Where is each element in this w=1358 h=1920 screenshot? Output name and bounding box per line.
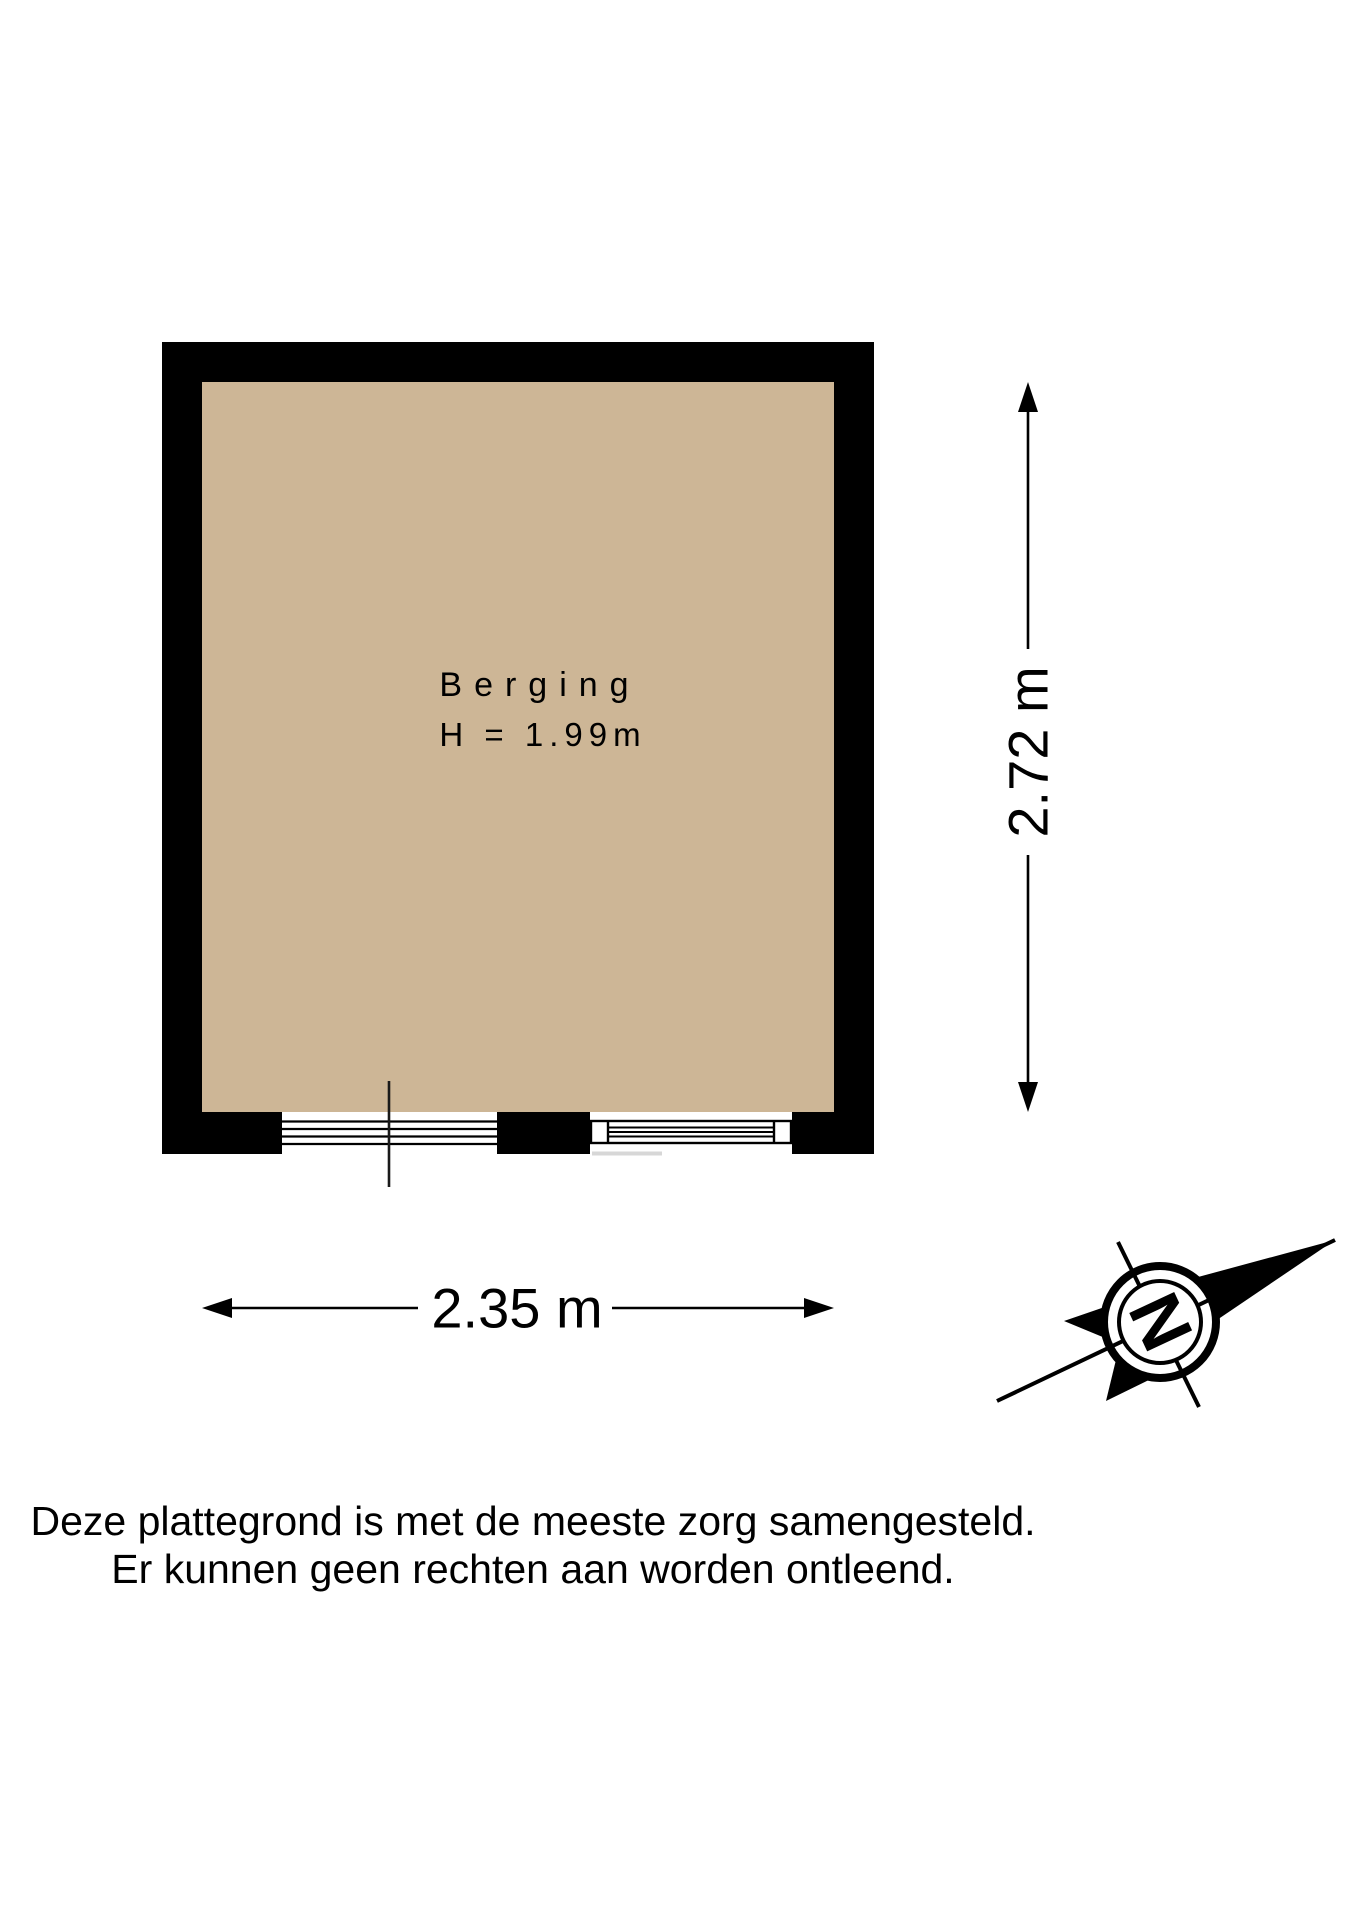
window [590, 1112, 792, 1154]
disclaimer-line-2: Er kunnen geen rechten aan worden ontlee… [111, 1546, 954, 1592]
floor-plan-canvas: Berging H = 1.99m 2.72 m 2.35 m [0, 0, 1358, 1920]
height-dimension-label: 2.72 m [997, 666, 1060, 837]
ceiling-height-label: H = 1.99m [439, 716, 646, 753]
floor-plan-page: Berging H = 1.99m 2.72 m 2.35 m [0, 0, 1358, 1920]
width-dimension-label: 2.35 m [431, 1277, 602, 1340]
disclaimer-line-1: Deze plattegrond is met de meeste zorg s… [30, 1498, 1035, 1544]
room-name-label: Berging [439, 666, 640, 704]
